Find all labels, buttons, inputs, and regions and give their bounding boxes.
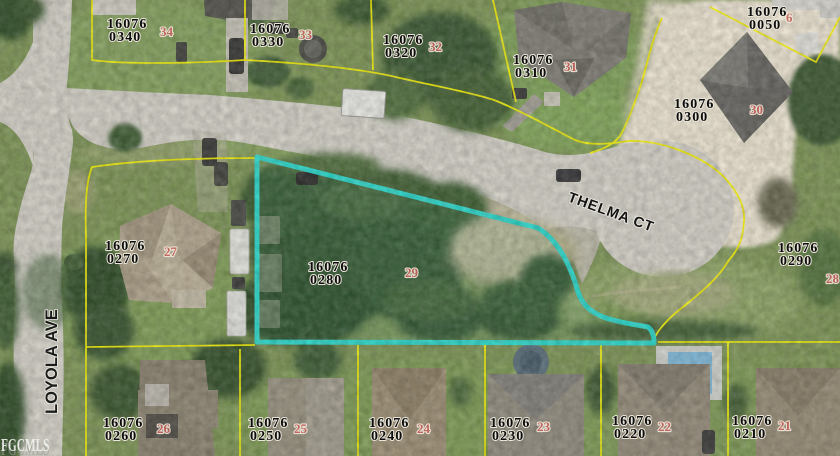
svg-text:0300: 0300 (676, 110, 708, 125)
svg-text:25: 25 (294, 421, 308, 436)
svg-text:0320: 0320 (385, 46, 417, 61)
svg-text:0270: 0270 (107, 252, 139, 267)
svg-text:6: 6 (786, 10, 793, 25)
svg-text:0280: 0280 (310, 273, 342, 288)
svg-text:34: 34 (160, 24, 174, 39)
svg-text:24: 24 (417, 421, 431, 436)
svg-text:29: 29 (405, 265, 419, 280)
svg-text:0260: 0260 (105, 429, 137, 444)
svg-text:0310: 0310 (515, 66, 547, 81)
svg-text:0240: 0240 (371, 429, 403, 444)
svg-text:28: 28 (826, 271, 840, 286)
svg-text:30: 30 (750, 102, 763, 117)
svg-text:0220: 0220 (614, 427, 646, 442)
svg-text:0290: 0290 (780, 254, 812, 269)
svg-text:33: 33 (299, 27, 313, 42)
svg-text:32: 32 (429, 39, 442, 54)
svg-text:31: 31 (564, 59, 577, 74)
svg-text:27: 27 (164, 244, 178, 259)
svg-text:0050: 0050 (749, 18, 781, 33)
svg-text:23: 23 (537, 419, 551, 434)
svg-text:21: 21 (778, 418, 791, 433)
svg-text:26: 26 (157, 421, 171, 436)
svg-text:22: 22 (658, 419, 671, 434)
svg-text:0330: 0330 (252, 35, 284, 50)
svg-text:0230: 0230 (492, 429, 524, 444)
svg-text:FGCMLS: FGCMLS (1, 437, 49, 456)
svg-text:0210: 0210 (734, 427, 766, 442)
svg-text:0250: 0250 (250, 429, 282, 444)
svg-text:0340: 0340 (109, 30, 141, 45)
svg-text:LOYOLA AVE: LOYOLA AVE (43, 309, 61, 414)
